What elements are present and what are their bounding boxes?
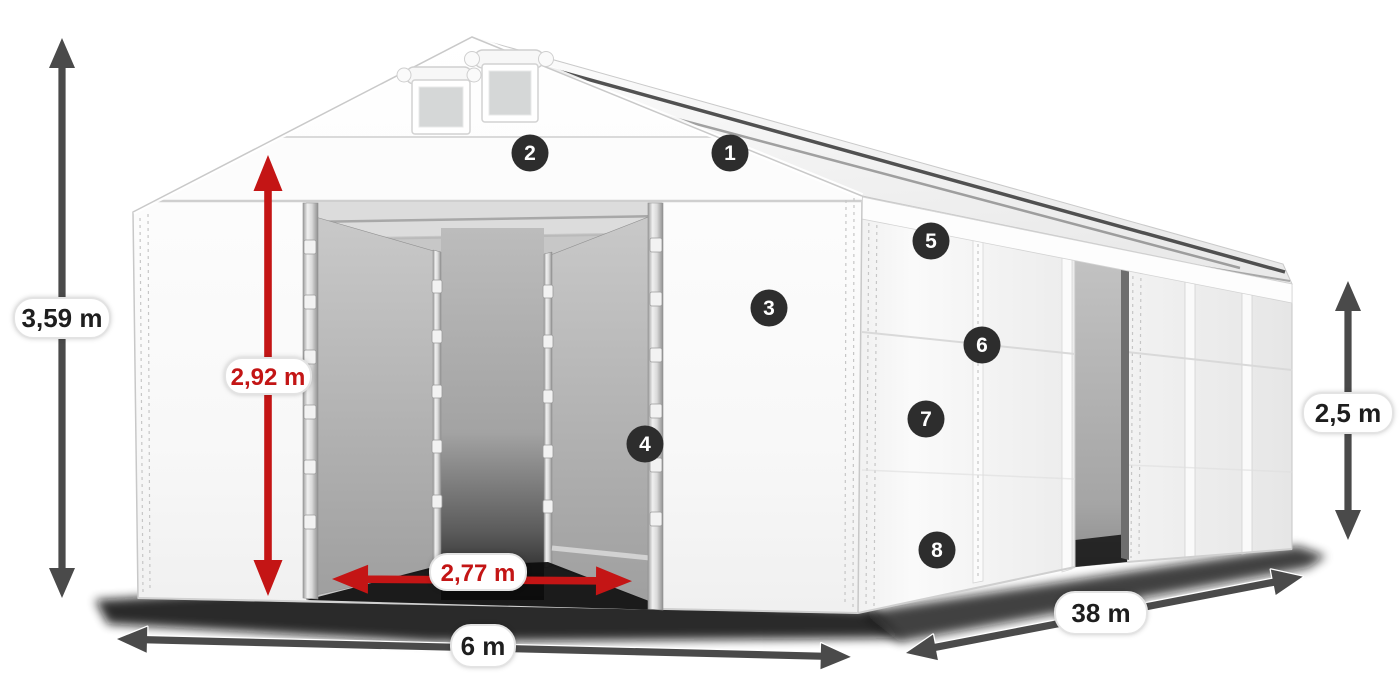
vent-mesh bbox=[489, 71, 531, 115]
marker-8-number: 8 bbox=[931, 539, 943, 562]
width-label: 6 m bbox=[451, 625, 515, 667]
leaf-edge-pole bbox=[544, 252, 552, 568]
side-wall-seam-pole bbox=[973, 224, 983, 583]
interior-back bbox=[441, 228, 544, 600]
side-height-label: 2,5 m bbox=[1303, 393, 1393, 433]
total-height-label: 3,59 m bbox=[14, 298, 110, 338]
entrance-height-value: 2,92 m bbox=[231, 364, 306, 391]
entrance-width-value: 2,77 m bbox=[441, 560, 516, 587]
door-post-right bbox=[648, 203, 663, 610]
entrance-height-label: 2,92 m bbox=[225, 358, 311, 394]
rear-wall-seam-pole bbox=[1242, 277, 1252, 554]
marker-3: 3 bbox=[751, 290, 788, 327]
length-value: 38 m bbox=[1071, 598, 1130, 628]
marker-6: 6 bbox=[964, 327, 1001, 364]
vent-mesh bbox=[419, 87, 463, 127]
marker-4-number: 4 bbox=[639, 433, 651, 456]
rear-wall-seam-pole bbox=[1185, 267, 1195, 559]
leaf-edge-pole bbox=[433, 250, 441, 568]
marker-1-number: 1 bbox=[724, 142, 736, 165]
total-height-value: 3,59 m bbox=[22, 303, 103, 333]
entrance-opening bbox=[306, 202, 662, 610]
marker-5: 5 bbox=[913, 223, 950, 260]
door-leaf-left bbox=[312, 216, 442, 596]
marker-6-number: 6 bbox=[976, 334, 988, 357]
marker-1: 1 bbox=[712, 135, 749, 172]
side-wall-edge-pole bbox=[1062, 244, 1072, 572]
open-bay bbox=[1075, 246, 1131, 567]
side-wall bbox=[858, 196, 1075, 613]
side-height-value: 2,5 m bbox=[1315, 398, 1382, 428]
marker-4: 4 bbox=[627, 426, 664, 463]
marker-2-number: 2 bbox=[524, 142, 536, 165]
marker-7-number: 7 bbox=[920, 408, 932, 431]
door-post-left bbox=[303, 203, 318, 599]
width-value: 6 m bbox=[461, 631, 506, 661]
length-label: 38 m bbox=[1055, 592, 1147, 634]
door-leaf-right bbox=[543, 214, 656, 604]
marker-3-number: 3 bbox=[763, 297, 775, 320]
rear-wall-section bbox=[1127, 257, 1292, 562]
bay-interior bbox=[1075, 252, 1127, 567]
tent-dimension-diagram: 3,59 m 2,92 m 2,77 m 6 m 38 m 2,5 m 1 bbox=[0, 0, 1400, 700]
marker-2: 2 bbox=[512, 135, 549, 172]
entrance-width-label: 2,77 m bbox=[430, 554, 526, 590]
bay-corner-pole bbox=[1121, 250, 1129, 560]
marker-5-number: 5 bbox=[925, 230, 937, 253]
marker-8: 8 bbox=[919, 532, 956, 569]
marker-7: 7 bbox=[908, 401, 945, 438]
